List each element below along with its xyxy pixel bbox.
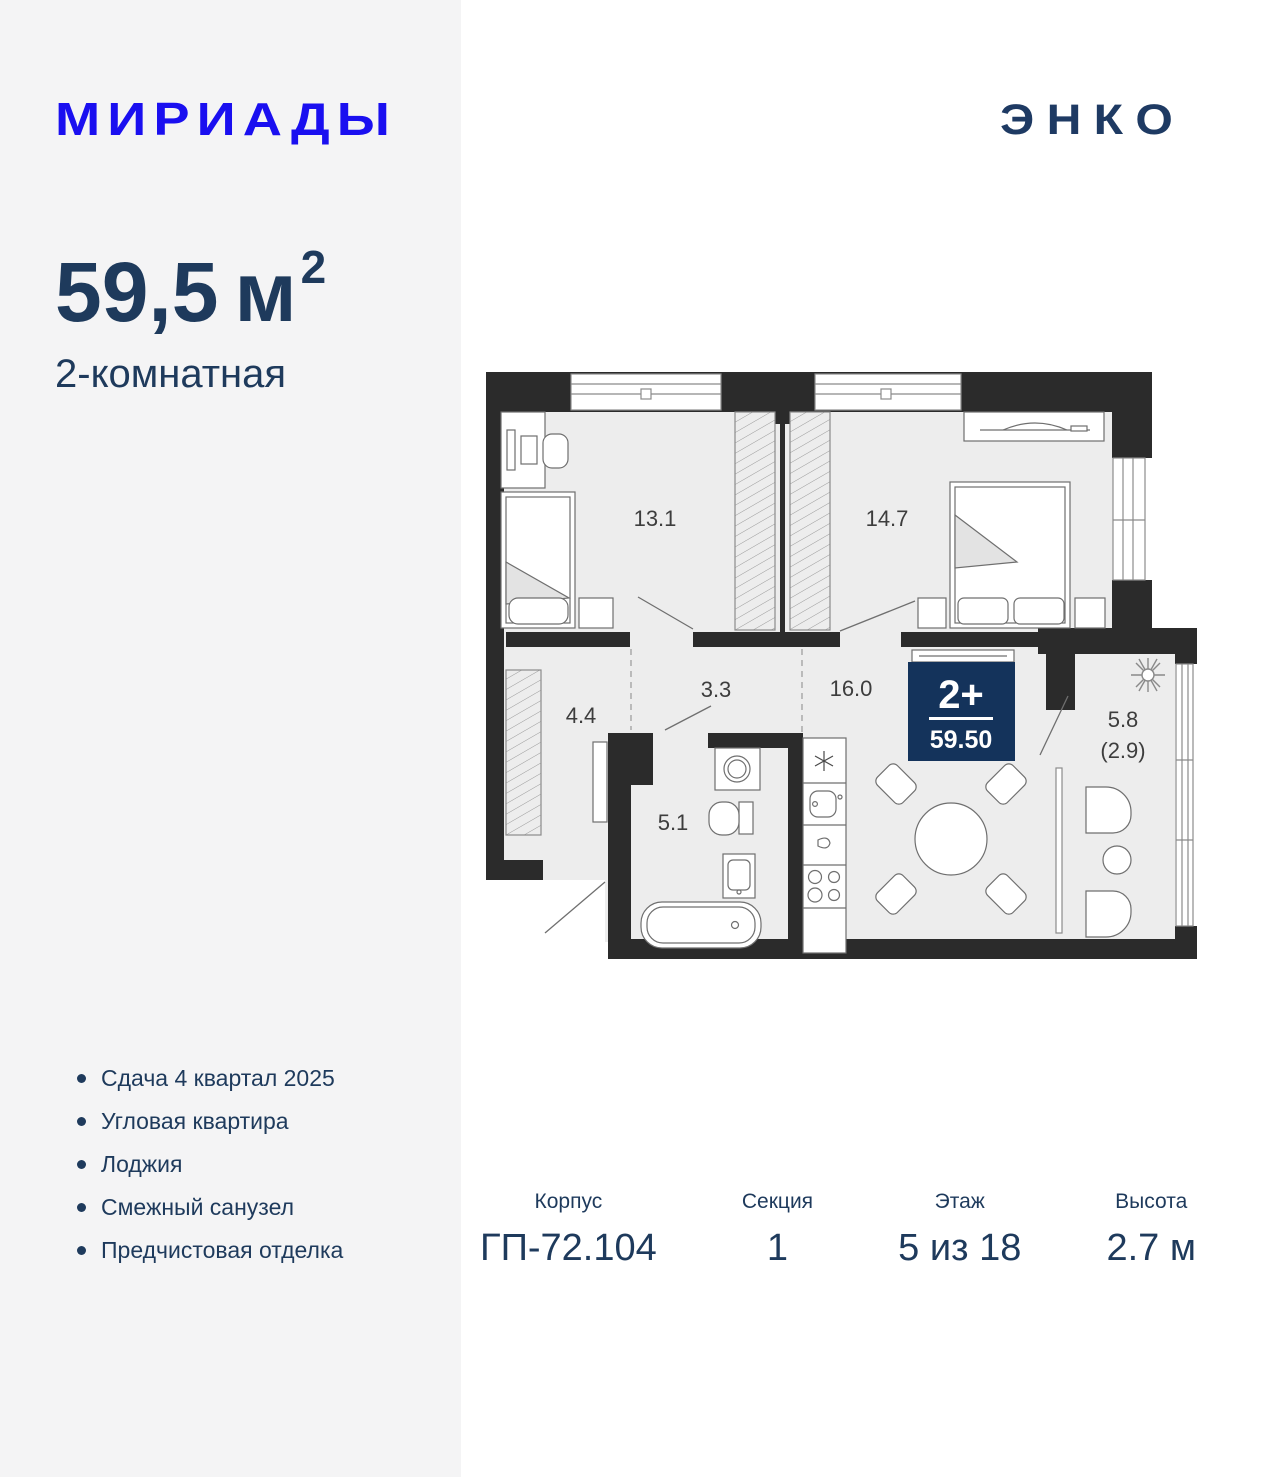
door-leaf-icon (593, 742, 607, 822)
area-title: 59,5м2 (55, 240, 326, 341)
feature-item: Предчистовая отделка (77, 1236, 343, 1264)
kitchen-row-icon (803, 738, 846, 953)
dresser-icon (964, 412, 1104, 441)
plan-badge-divider (929, 717, 993, 720)
detail-value: 2.7 м (1106, 1227, 1196, 1270)
floorplan: 2+ 59.50 13.1 14.7 3.3 16.0 4.4 5.1 5.8 … (483, 370, 1198, 965)
detail-value: 5 из 18 (898, 1227, 1021, 1270)
floorplan-svg: 2+ 59.50 13.1 14.7 3.3 16.0 4.4 5.1 5.8 … (483, 370, 1198, 965)
tv-console-icon (912, 650, 1014, 662)
area-exponent: 2 (301, 241, 327, 293)
bathtub-icon (641, 902, 761, 948)
room-label-hall: 3.3 (701, 677, 732, 702)
nightstand-icon (1075, 598, 1105, 628)
detail-label: Секция (742, 1190, 813, 1214)
room-label-bedroom1: 13.1 (634, 506, 677, 531)
nightstand-icon (918, 598, 946, 628)
page: { "colors": { "page_background": "#fffff… (0, 0, 1280, 1477)
room-label-kitchen-living: 16.0 (830, 676, 873, 701)
plan-badge-area: 59.50 (930, 726, 993, 754)
room-label-loggia: 5.8 (1108, 707, 1139, 732)
feature-label: Предчистовая отделка (101, 1237, 343, 1264)
feature-label: Угловая квартира (101, 1108, 289, 1135)
bullet-icon (77, 1117, 86, 1126)
window-bedroom2-icon (1113, 458, 1145, 580)
room-label-bedroom2: 14.7 (866, 506, 909, 531)
nightstand-icon (579, 598, 613, 628)
window-top-left-icon (571, 374, 721, 410)
room-label-loggia-reduced: (2.9) (1100, 738, 1145, 763)
detail-floor: Этаж 5 из 18 (898, 1190, 1021, 1270)
feature-label: Сдача 4 квартал 2025 (101, 1065, 335, 1092)
area-unit: м (235, 245, 297, 339)
feature-item: Угловая квартира (77, 1107, 343, 1135)
rooms-subtitle: 2-комнатная (55, 352, 286, 397)
bath-sink-icon (723, 854, 755, 898)
washing-machine-icon (715, 748, 760, 790)
wardrobe-icon (790, 412, 830, 630)
detail-label: Высота (1106, 1190, 1196, 1214)
room-label-bathroom: 5.1 (658, 810, 689, 835)
single-bed-icon (501, 492, 575, 628)
feature-label: Смежный санузел (101, 1194, 294, 1221)
bullet-icon (77, 1074, 86, 1083)
detail-value: 1 (742, 1227, 813, 1270)
details-row: Корпус ГП-72.104 Секция 1 Этаж 5 из 18 В… (480, 1190, 1196, 1270)
wardrobe-icon (735, 412, 775, 630)
feature-item: Лоджия (77, 1150, 343, 1178)
double-bed-icon (950, 482, 1070, 628)
detail-height: Высота 2.7 м (1106, 1190, 1196, 1270)
bullet-icon (77, 1160, 86, 1169)
bullet-icon (77, 1246, 86, 1255)
area-value: 59,5 (55, 245, 219, 339)
loggia-partition-glass (1056, 768, 1062, 933)
feature-label: Лоджия (101, 1151, 183, 1178)
detail-section: Секция 1 (742, 1190, 813, 1270)
feature-item: Смежный санузел (77, 1193, 343, 1221)
loggia-table-icon (1103, 846, 1131, 874)
detail-value: ГП-72.104 (480, 1227, 657, 1270)
toilet-icon (709, 802, 753, 835)
features-list: Сдача 4 квартал 2025 Угловая квартира Ло… (77, 1064, 343, 1279)
developer-logo: ЭНКО (1000, 96, 1185, 145)
bullet-icon (77, 1203, 86, 1212)
feature-item: Сдача 4 квартал 2025 (77, 1064, 343, 1092)
detail-building: Корпус ГП-72.104 (480, 1190, 657, 1270)
loggia-glazing-icon (1176, 664, 1193, 926)
detail-label: Этаж (898, 1190, 1021, 1214)
window-top-right-icon (815, 374, 961, 410)
wardrobe-icon (506, 670, 541, 835)
plan-badge: 2+ 59.50 (908, 662, 1015, 761)
plan-badge-rooms: 2+ (938, 673, 984, 717)
room-label-entry-hall: 4.4 (566, 703, 597, 728)
kitchen-cabinet-icon (818, 838, 830, 848)
brand-logo: МИРИАДЫ (55, 92, 397, 146)
detail-label: Корпус (480, 1190, 657, 1214)
plant-icon (1131, 658, 1165, 692)
